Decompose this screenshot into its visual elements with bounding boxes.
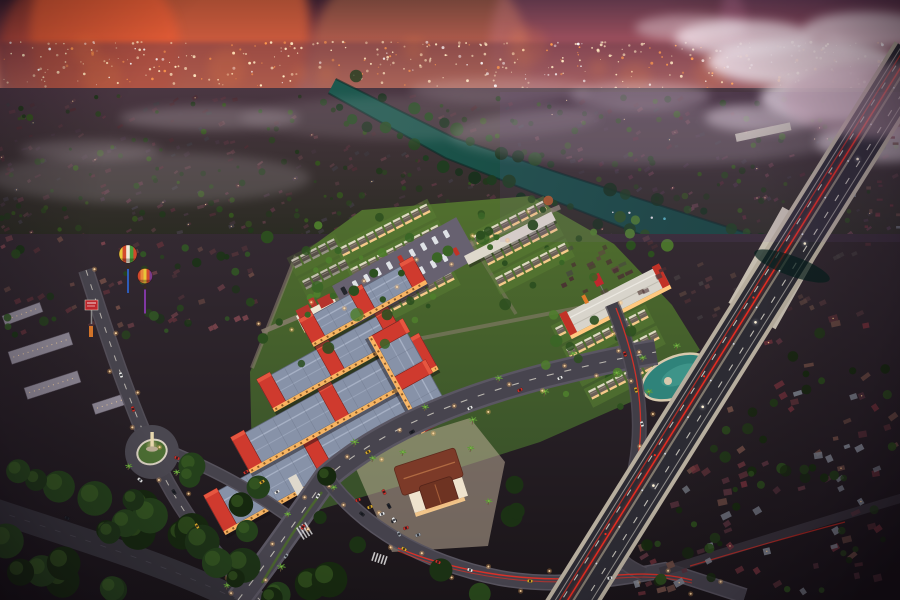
vignette [0, 0, 900, 600]
layer-fx [0, 0, 900, 600]
screenshot-stage [0, 0, 900, 600]
scene-root [0, 0, 900, 600]
